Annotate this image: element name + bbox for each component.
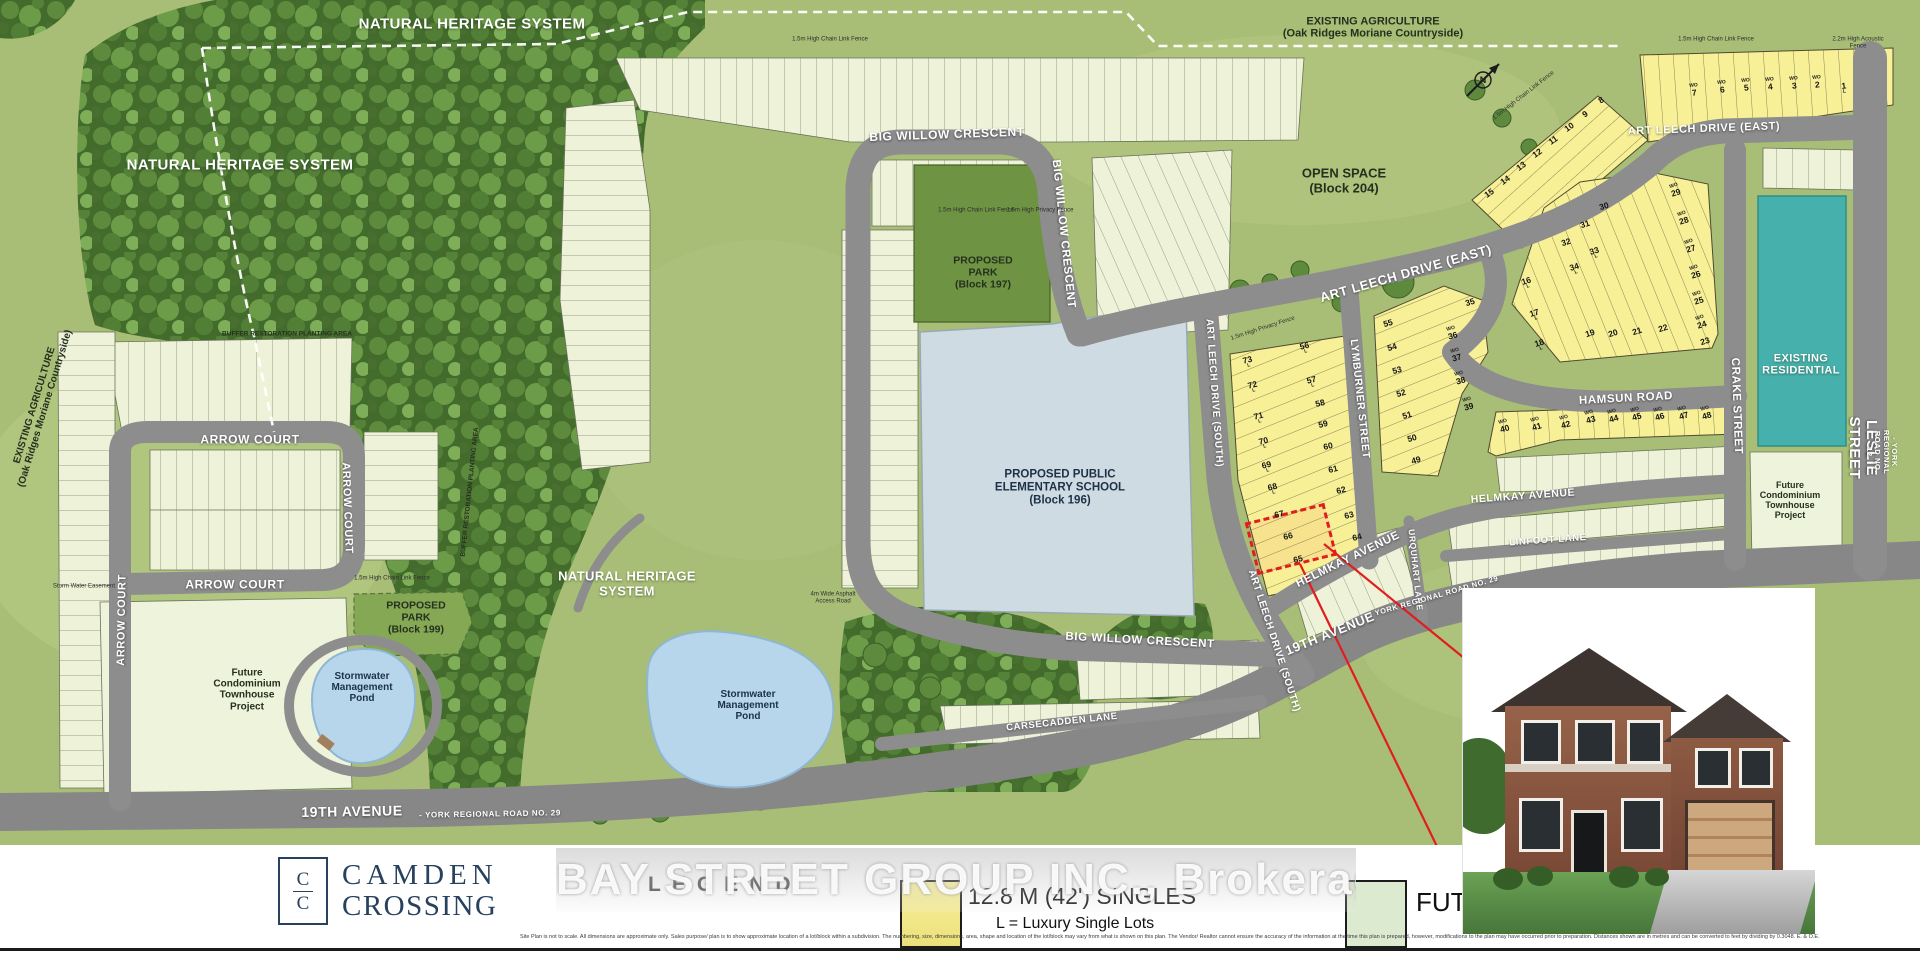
school-block-196 bbox=[920, 302, 1194, 616]
existing-residential-block bbox=[1758, 196, 1846, 446]
model-home-photo bbox=[1462, 588, 1815, 934]
brokerage-watermark: BAY STREET GROUP INC., Brokerage bbox=[556, 848, 1356, 912]
photo-window bbox=[1621, 798, 1663, 852]
bottom-rule bbox=[0, 948, 1920, 951]
park-block-197 bbox=[914, 165, 1050, 322]
site-plan-screenshot: N NATURAL HERITAGE SYSTEMNATURAL HERITAG… bbox=[0, 0, 1920, 956]
photo-driveway bbox=[1650, 870, 1815, 934]
disclaimer-text: Site Plan is not to scale. All dimension… bbox=[520, 934, 1910, 940]
legend-label-luxury: L = Luxury Single Lots bbox=[996, 915, 1154, 933]
svg-text:N: N bbox=[1480, 75, 1487, 85]
camden-crossing-monogram: C C bbox=[278, 857, 328, 925]
camden-crossing-logo: C C CAMDEN CROSSING bbox=[278, 857, 498, 925]
photo-window bbox=[1575, 720, 1615, 764]
park-block-199 bbox=[354, 592, 472, 656]
photo-window bbox=[1521, 720, 1561, 764]
photo-window bbox=[1695, 748, 1731, 788]
photo-roof bbox=[1491, 648, 1687, 712]
photo-window bbox=[1739, 748, 1773, 788]
brand-name-line2: CROSSING bbox=[342, 891, 498, 922]
photo-window bbox=[1519, 798, 1563, 852]
brand-name-line1: CAMDEN bbox=[342, 860, 498, 891]
photo-window bbox=[1627, 720, 1663, 764]
legend-label-future: FUTU bbox=[1416, 887, 1462, 918]
